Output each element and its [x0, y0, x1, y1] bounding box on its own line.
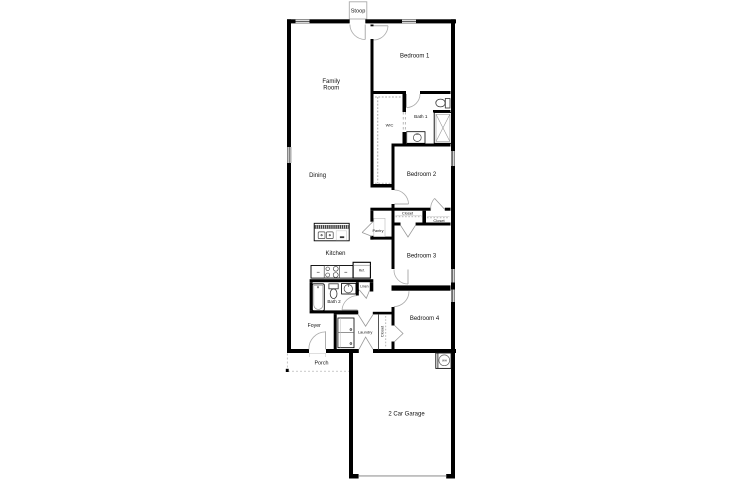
svg-text:WH: WH	[442, 359, 447, 363]
svg-text:Closet: Closet	[402, 211, 414, 216]
svg-text:Pantry: Pantry	[373, 229, 384, 233]
svg-text:WIC: WIC	[386, 123, 394, 128]
svg-text:2 Car Garage: 2 Car Garage	[388, 412, 425, 418]
svg-text:Room: Room	[323, 86, 339, 92]
svg-text:Laundry: Laundry	[358, 330, 372, 335]
svg-text:Family: Family	[322, 79, 340, 85]
svg-text:Foyer: Foyer	[308, 323, 322, 329]
svg-text:Stoop: Stoop	[351, 9, 366, 15]
svg-text:Bedroom 2: Bedroom 2	[407, 172, 437, 178]
svg-text:Bedroom 4: Bedroom 4	[410, 316, 440, 322]
svg-text:Bedroom 3: Bedroom 3	[407, 254, 437, 260]
svg-text:Linen: Linen	[360, 285, 368, 289]
svg-text:Ref.: Ref.	[359, 269, 365, 273]
svg-text:Closet: Closet	[433, 218, 445, 223]
svg-text:Porch: Porch	[314, 360, 328, 366]
svg-text:Bath 1: Bath 1	[414, 114, 428, 119]
svg-text:Dining: Dining	[309, 173, 326, 179]
svg-text:Bath 2: Bath 2	[327, 299, 341, 304]
svg-text:Bedroom 1: Bedroom 1	[400, 54, 430, 60]
svg-text:Kitchen: Kitchen	[325, 251, 345, 257]
svg-text:Closet: Closet	[380, 325, 385, 337]
